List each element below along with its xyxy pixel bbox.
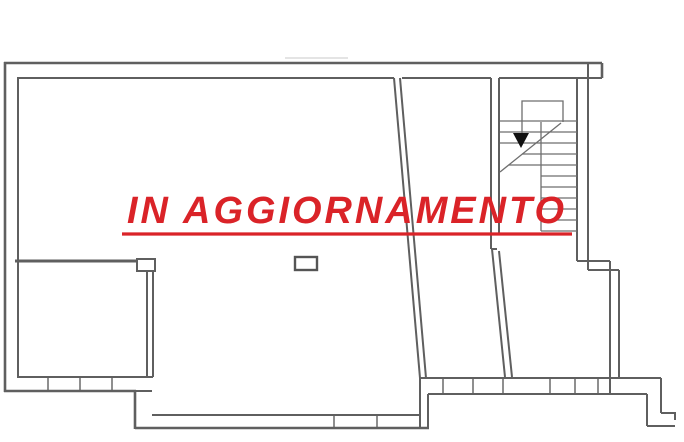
lower-room-walls	[152, 415, 420, 428]
pillar	[295, 257, 317, 270]
watermark-text: IN AGGIORNAMENTO	[127, 190, 567, 232]
stair-direction-path	[522, 101, 563, 134]
floorplan-image: IN AGGIORNAMENTO	[0, 0, 684, 442]
floorplan-drawing: IN AGGIORNAMENTO	[0, 0, 684, 442]
stairs-down-arrow-icon	[513, 133, 529, 148]
bottom-wall-right	[420, 378, 675, 426]
wall-pilaster	[137, 259, 155, 271]
slanted-walls	[394, 78, 512, 428]
left-room-walls	[5, 259, 155, 391]
